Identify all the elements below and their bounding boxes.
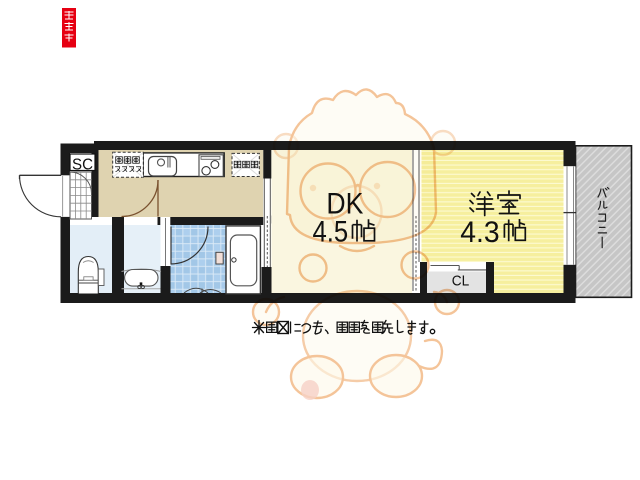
svg-text:SC: SC [72, 157, 93, 174]
svg-text:CL: CL [452, 274, 470, 290]
svg-text:4.3: 4.3 [460, 216, 499, 249]
